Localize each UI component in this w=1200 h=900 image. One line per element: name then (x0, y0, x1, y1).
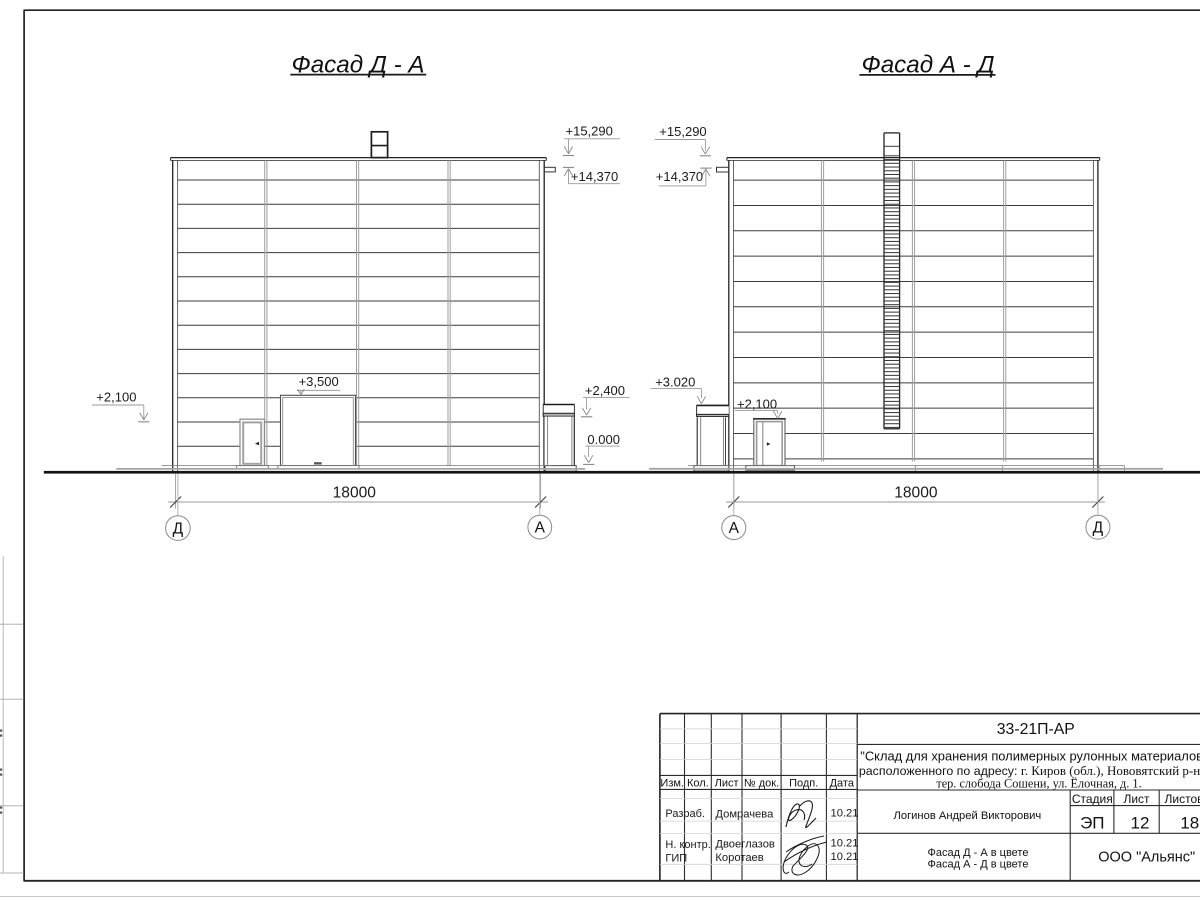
svg-text:18000: 18000 (894, 484, 938, 501)
svg-text:ООО "Альянс": ООО "Альянс" (1098, 850, 1195, 866)
svg-text:А: А (729, 520, 740, 537)
svg-text:+15,290: +15,290 (566, 124, 613, 139)
svg-text:Листов: Листов (1165, 792, 1200, 806)
svg-text:+2,100: +2,100 (96, 390, 136, 405)
svg-text:18000: 18000 (333, 484, 377, 501)
svg-text:Фасад Д - А в цвете: Фасад Д - А в цвете (928, 847, 1029, 859)
svg-text:Д: Д (173, 521, 184, 538)
svg-text:Стадия: Стадия (1072, 792, 1113, 806)
svg-text:Подп.: Подп. (789, 778, 818, 790)
svg-text:Кол.: Кол. (687, 778, 709, 790)
svg-text:+2,400: +2,400 (585, 383, 625, 398)
svg-text:+3.020: +3.020 (655, 375, 695, 390)
svg-text:+14,370: +14,370 (571, 169, 618, 184)
svg-text:+14,370: +14,370 (656, 169, 703, 184)
svg-text:Изм.: Изм. (660, 778, 684, 790)
svg-text:Коротаев: Коротаев (715, 852, 763, 864)
svg-text:10.21: 10.21 (831, 851, 859, 863)
svg-text:Н. контр.: Н. контр. (665, 839, 710, 851)
svg-text:Лист: Лист (715, 778, 739, 790)
svg-text:Фасад А - Д в цвете: Фасад А - Д в цвете (928, 859, 1029, 871)
svg-text:Домрачева: Домрачева (715, 809, 774, 821)
svg-text:"Склад для хранения полимерных: "Склад для хранения полимерных рулонных … (860, 748, 1200, 763)
svg-text:+2,100: +2,100 (737, 397, 777, 412)
svg-text:тер. слобода Сошени, ул. Ёлочн: тер. слобода Сошени, ул. Ёлочная, д. 1. (936, 776, 1141, 790)
svg-text:Лист: Лист (1123, 792, 1150, 806)
svg-text:10.21: 10.21 (831, 838, 859, 850)
svg-text:ГИП: ГИП (665, 853, 687, 865)
svg-text:+3,500: +3,500 (299, 374, 339, 389)
svg-text:Д: Д (1093, 520, 1104, 537)
svg-text:+15,290: +15,290 (659, 124, 706, 139)
svg-text:18: 18 (1180, 814, 1199, 833)
svg-text:Логинов Андрей Викторович: Логинов Андрей Викторович (894, 810, 1042, 822)
svg-text:33-21П-АР: 33-21П-АР (997, 721, 1075, 738)
svg-text:Дата: Дата (830, 778, 855, 790)
svg-text:0.000: 0.000 (587, 432, 620, 447)
svg-text:Двоеглазов: Двоеглазов (715, 839, 775, 851)
svg-text:12: 12 (1131, 814, 1150, 833)
svg-text:Разраб.: Разраб. (665, 808, 705, 820)
svg-text:ЭП: ЭП (1080, 814, 1104, 833)
svg-text:№ док.: № док. (744, 778, 779, 790)
svg-text:А: А (535, 520, 546, 537)
svg-text:10.21: 10.21 (831, 808, 859, 820)
